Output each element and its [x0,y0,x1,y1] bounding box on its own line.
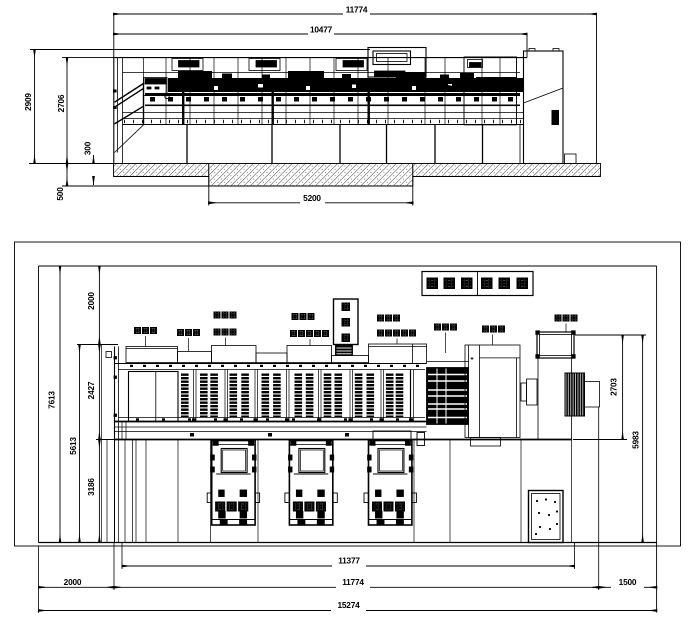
svg-text:11774: 11774 [346,5,368,15]
svg-text:2703: 2703 [609,378,619,396]
svg-text:10477: 10477 [310,25,333,35]
svg-text:500: 500 [55,187,65,201]
svg-text:2909: 2909 [23,93,33,111]
svg-text:5613: 5613 [68,437,78,455]
svg-text:2000: 2000 [64,577,82,587]
svg-text:5200: 5200 [303,193,321,203]
svg-text:2427: 2427 [86,381,96,399]
svg-text:300: 300 [83,141,93,155]
svg-text:11774: 11774 [342,577,364,587]
svg-text:1500: 1500 [619,577,637,587]
svg-text:7613: 7613 [47,391,57,409]
svg-text:3186: 3186 [86,478,96,496]
svg-text:11377: 11377 [338,556,360,566]
svg-text:15274: 15274 [337,600,360,610]
svg-text:5983: 5983 [631,431,641,449]
svg-text:2706: 2706 [56,94,66,112]
svg-text:2000: 2000 [86,292,96,310]
